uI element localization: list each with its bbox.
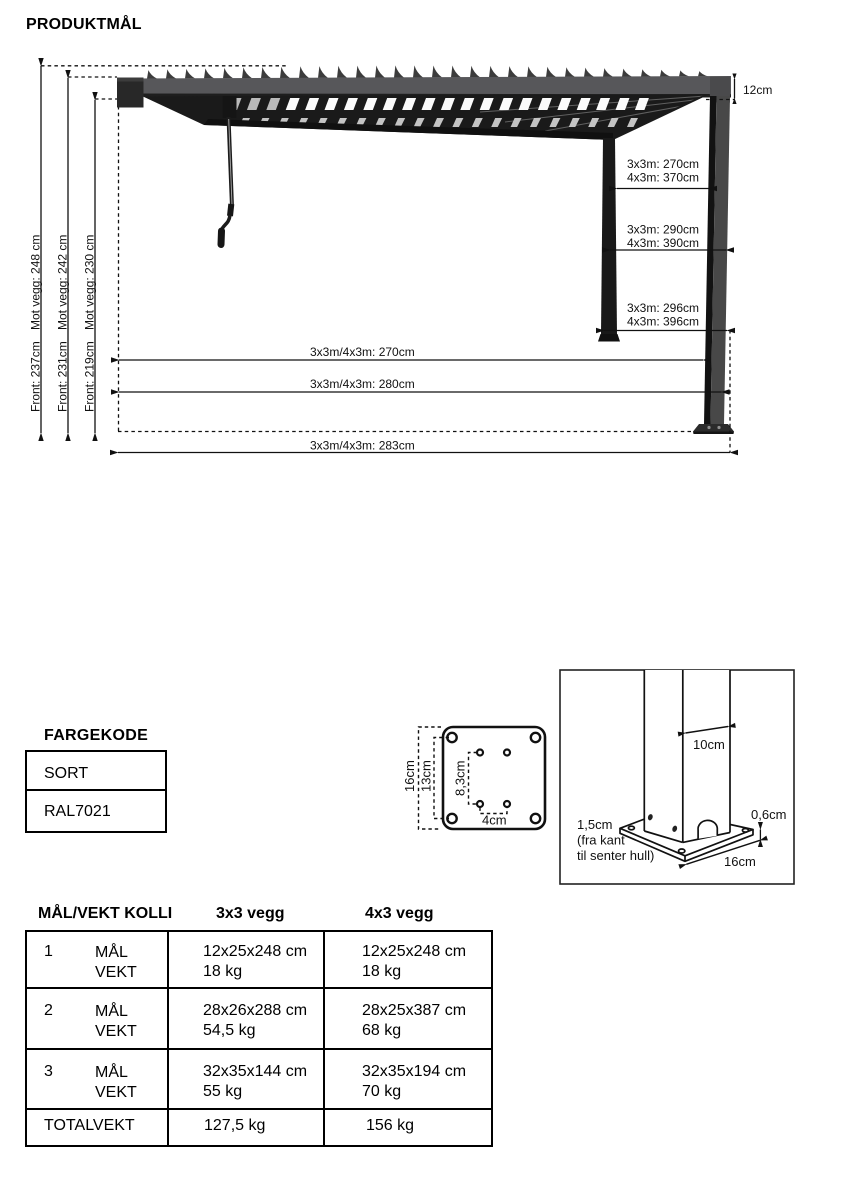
svg-text:Mot vegg: 242 cm: Mot vegg: 242 cm [56,235,70,330]
svg-text:4x3m: 370cm: 4x3m: 370cm [627,171,699,185]
svg-text:4cm: 4cm [482,813,507,828]
svg-text:4x3m: 390cm: 4x3m: 390cm [627,236,699,250]
svg-text:Front: 237cm: Front: 237cm [29,341,43,412]
svg-text:(fra kant: (fra kant [577,833,625,848]
svg-text:3x3m/4x3m: 270cm: 3x3m/4x3m: 270cm [310,345,415,359]
svg-text:til senter hull): til senter hull) [577,848,654,863]
svg-text:3x3m: 290cm: 3x3m: 290cm [627,223,699,237]
svg-text:13cm: 13cm [419,760,434,792]
svg-text:16cm: 16cm [402,760,417,792]
svg-text:3x3m: 270cm: 3x3m: 270cm [627,157,699,171]
svg-text:3x3m/4x3m: 280cm: 3x3m/4x3m: 280cm [310,377,415,391]
svg-text:0,6cm: 0,6cm [751,807,786,822]
svg-text:Front: 219cm: Front: 219cm [83,341,97,412]
svg-text:1,5cm: 1,5cm [577,817,612,832]
svg-text:4x3m: 396cm: 4x3m: 396cm [627,315,699,329]
svg-text:3x3m/4x3m: 283cm: 3x3m/4x3m: 283cm [310,439,415,453]
svg-text:Front: 231cm: Front: 231cm [56,341,70,412]
svg-text:12cm: 12cm [743,83,772,97]
svg-text:8,3cm: 8,3cm [453,761,468,796]
svg-text:10cm: 10cm [693,737,725,752]
svg-text:Mot vegg: 248 cm: Mot vegg: 248 cm [29,235,43,330]
svg-text:Mot vegg: 230 cm: Mot vegg: 230 cm [83,235,97,330]
svg-text:3x3m: 296cm: 3x3m: 296cm [627,301,699,315]
svg-text:16cm: 16cm [724,854,756,869]
